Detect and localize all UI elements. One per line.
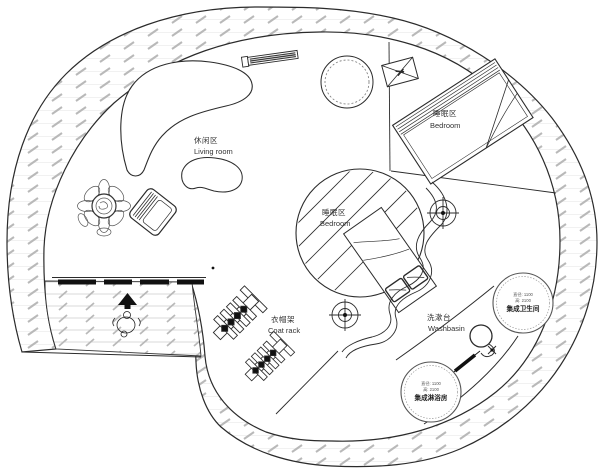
coat-rack-stand bbox=[238, 331, 295, 388]
coffee-table bbox=[182, 158, 243, 192]
lounge-chair bbox=[128, 187, 179, 238]
shower-pod-name: 集成淋浴房 bbox=[414, 393, 448, 402]
round-rug bbox=[321, 56, 373, 108]
light-fixture-symbol bbox=[329, 299, 361, 331]
washbasin-label-zh: 洗漱台 bbox=[427, 312, 451, 322]
crossed-window-symbol bbox=[382, 57, 419, 87]
living-room-label-en: Living room bbox=[194, 147, 233, 156]
floor-plan-canvas: 直径: 1100 高: 2100 集成卫生间 直径: 1100 高: 2100 … bbox=[0, 0, 611, 473]
hand-shower-icon bbox=[470, 325, 496, 357]
towel-bar bbox=[450, 351, 480, 375]
bathroom-pod-spec-diameter: 直径: 1100 bbox=[513, 291, 533, 297]
coat-rack-stand bbox=[206, 286, 268, 348]
living-room-label-zh: 休闲区 bbox=[194, 135, 218, 145]
terrace-deck bbox=[45, 281, 201, 356]
potted-plant bbox=[76, 180, 130, 237]
bedroom-upper-label-en: Bedroom bbox=[430, 121, 460, 130]
bedroom-center-label-en: Bedroom bbox=[320, 219, 350, 228]
washbasin-label-en: Washbasin bbox=[428, 324, 465, 333]
coat-rack-label-zh: 衣帽架 bbox=[271, 314, 295, 324]
bedroom-center-label-zh: 睡眠区 bbox=[322, 208, 346, 217]
shower-pod: 直径: 1100 高: 2100 集成淋浴房 bbox=[401, 362, 461, 422]
bathroom-pod: 直径: 1100 高: 2100 集成卫生间 bbox=[493, 273, 553, 333]
bedroom-upper-label-zh: 睡眠区 bbox=[433, 109, 457, 118]
reference-dot bbox=[212, 267, 215, 270]
light-fixture-symbol bbox=[427, 197, 459, 229]
shower-pod-spec-diameter: 直径: 1100 bbox=[421, 380, 441, 386]
shower-pod-spec-height: 高: 2100 bbox=[423, 386, 440, 393]
bathroom-pod-spec-height: 高: 2100 bbox=[515, 297, 532, 304]
bathroom-pod-name: 集成卫生间 bbox=[506, 304, 540, 313]
floor-plan: 直径: 1100 高: 2100 集成卫生间 直径: 1100 高: 2100 … bbox=[0, 0, 611, 473]
curved-sofa bbox=[121, 61, 252, 176]
coat-rack-label-en: Coat rack bbox=[268, 326, 300, 335]
sliding-door-wall bbox=[52, 278, 206, 285]
wall-bench bbox=[241, 49, 298, 67]
